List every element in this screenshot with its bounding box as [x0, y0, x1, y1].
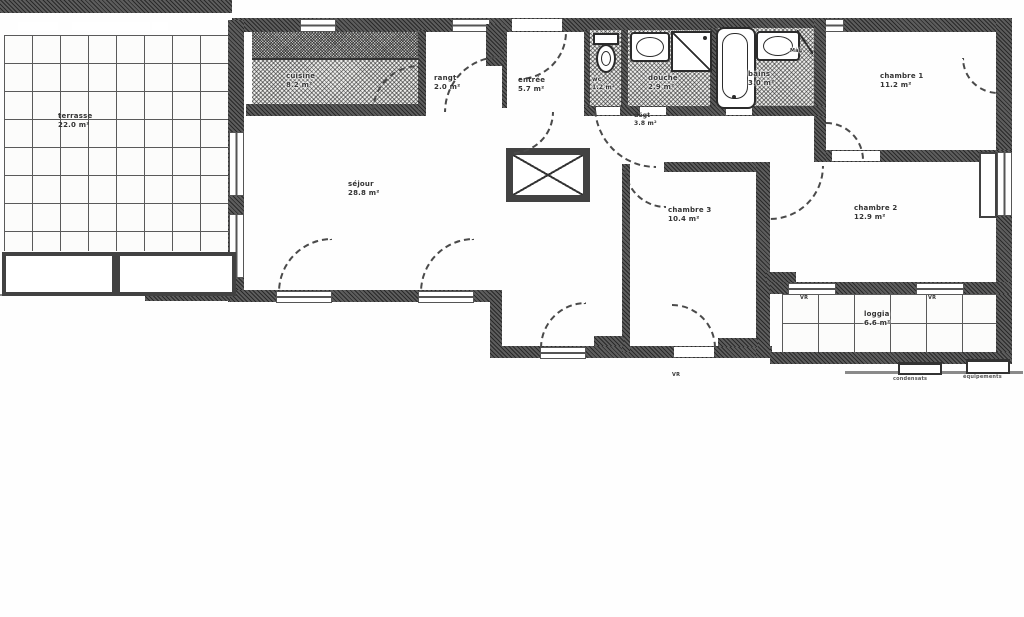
door-arc-lower-window: [540, 302, 586, 348]
room-area: 1.2 m²: [592, 84, 615, 92]
cuisine-worktop: [252, 32, 418, 58]
room-label-sejour: séjour 28.8 m²: [348, 180, 379, 198]
shower-tray-icon: [671, 31, 712, 72]
washbasin-bowl-icon: [763, 36, 793, 56]
room-label-douche: douche 2.9 m²: [648, 74, 678, 92]
equipment-bracket-right: [966, 359, 1010, 374]
room-name: chambre 1: [880, 72, 923, 81]
room-name: wc: [592, 76, 615, 84]
wall-chambre3-chambre2: [756, 162, 770, 358]
room-area: 10.4 m²: [668, 215, 711, 224]
duct-shaft: [506, 148, 590, 202]
room-label-chambre1: chambre 1 11.2 m²: [880, 72, 923, 90]
wall-chambre3-left: [622, 164, 630, 352]
room-area: 2.9 m²: [648, 83, 678, 92]
room-label-cuisine: cuisine 8.2 m²: [286, 72, 315, 90]
room-label-chambre2: chambre 2 12.9 m²: [854, 204, 897, 222]
radiator: [718, 338, 758, 347]
room-area: 5.7 m²: [518, 85, 545, 94]
wall-bains-chambre1: [814, 18, 826, 162]
front-door-opening: [512, 19, 562, 31]
room-name: terrasse: [58, 112, 92, 121]
window-sejour-left: [276, 291, 332, 303]
annotation-text: VR: [928, 295, 936, 302]
annotation-text: équipements: [963, 374, 1002, 381]
door-arc-chambre3-window: [672, 304, 716, 348]
room-name: rangt: [434, 74, 460, 83]
washbasin-bains-icon: [756, 31, 800, 61]
window-rangt: [452, 19, 490, 32]
floor-plan: terrasse 22.0 m² cuisine 8.2 m² rangt 2.…: [0, 0, 1024, 617]
door-arc-chambre3: [624, 166, 666, 208]
annotation-text: VR: [800, 295, 808, 302]
wall-chambre3-top: [664, 162, 756, 172]
room-label-bains: bains 3.0 m²: [748, 70, 774, 88]
terrace-tiles: [4, 35, 228, 251]
door-arc-chambre2: [770, 166, 824, 220]
room-label-entree: entrée 5.7 m²: [518, 76, 545, 94]
wall-lower-bottom: [490, 346, 772, 358]
room-area: 28.8 m²: [348, 189, 379, 198]
shower-drain-icon: [703, 36, 707, 40]
room-area: 3.0 m²: [748, 79, 774, 88]
room-name: bains: [748, 70, 774, 79]
room-label-wc: wc 1.2 m²: [592, 76, 615, 92]
terrace-rail-gap: [18, 22, 58, 31]
room-label-chambre3: chambre 3 10.4 m²: [668, 206, 711, 224]
door-arc-chambre1-window: [962, 58, 998, 94]
equipment-label-left: condensats: [893, 376, 927, 383]
terrace-rail-gap: [72, 22, 150, 31]
roller-shutter-label: VR: [800, 295, 808, 302]
toilet-icon: [596, 44, 616, 73]
wall-cuisine-rangt: [418, 30, 426, 110]
room-label-terrasse: terrasse 22.0 m²: [58, 112, 92, 130]
room-label-loggia: loggia 6.6 m²: [864, 310, 890, 328]
door-arc-chambre1: [826, 122, 864, 160]
room-area: 22.0 m²: [58, 121, 92, 130]
room-area: 3.8 m²: [634, 120, 657, 128]
terrace-planter-right: [116, 252, 236, 296]
room-name: dégt: [634, 112, 657, 120]
room-area: 11.2 m²: [880, 81, 923, 90]
room-name: loggia: [864, 310, 890, 319]
window-sejour-terrace-1: [229, 132, 244, 196]
radiator: [594, 336, 624, 346]
bathtub-inner-icon: [722, 33, 748, 99]
door-arc-sejour-window-right: [420, 238, 474, 292]
room-name: chambre 3: [668, 206, 711, 215]
window-sejour-right: [418, 291, 474, 303]
room-name: chambre 2: [854, 204, 897, 213]
toilet-bowl-icon: [601, 51, 611, 66]
door-opening-chambre3: [674, 347, 714, 357]
terrace-rail-gap: [152, 22, 168, 31]
roller-shutter-label: VR: [672, 372, 680, 379]
room-name: cuisine: [286, 72, 315, 81]
annotation-text: VR: [672, 372, 680, 379]
window-chambre1-right: [997, 152, 1012, 216]
door-arc-sejour-window-left: [278, 238, 332, 292]
washbasin-douche-icon: [630, 32, 670, 62]
room-area: 2.0 m²: [434, 83, 460, 92]
roller-shutter-label: VR: [928, 295, 936, 302]
duct-shaft-cross-icon: [513, 155, 583, 195]
shutter-box: [979, 152, 997, 218]
room-area: 6.6 m²: [864, 319, 890, 328]
room-area: 12.9 m²: [854, 213, 897, 222]
annotation-text: MàL: [790, 48, 802, 55]
equipment-label-right: équipements: [963, 374, 1002, 381]
room-name: séjour: [348, 180, 379, 189]
radiator: [766, 272, 796, 282]
wall-entree-wc: [584, 30, 590, 114]
washing-machine-label: MàL: [790, 48, 802, 55]
bathtub-icon: [716, 27, 756, 109]
annotation-text: condensats: [893, 376, 927, 383]
washbasin-bowl-icon: [636, 37, 664, 57]
room-label-degt: dégt 3.8 m²: [634, 112, 657, 128]
door-arc-entree-front: [519, 32, 567, 80]
room-label-rangt: rangt 2.0 m²: [434, 74, 460, 92]
room-name: entrée: [518, 76, 545, 85]
equipment-bracket-left: [898, 362, 942, 375]
cuisine-worktop-edge: [252, 58, 418, 60]
bathtub-drain-icon: [732, 95, 736, 99]
wall-wc-douche: [621, 30, 628, 110]
window-lower: [540, 347, 586, 359]
room-area: 8.2 m²: [286, 81, 315, 90]
room-name: douche: [648, 74, 678, 83]
terrace-planter-left: [2, 252, 116, 296]
wall-terrace-top: [0, 0, 232, 13]
window-cuisine: [300, 19, 336, 32]
